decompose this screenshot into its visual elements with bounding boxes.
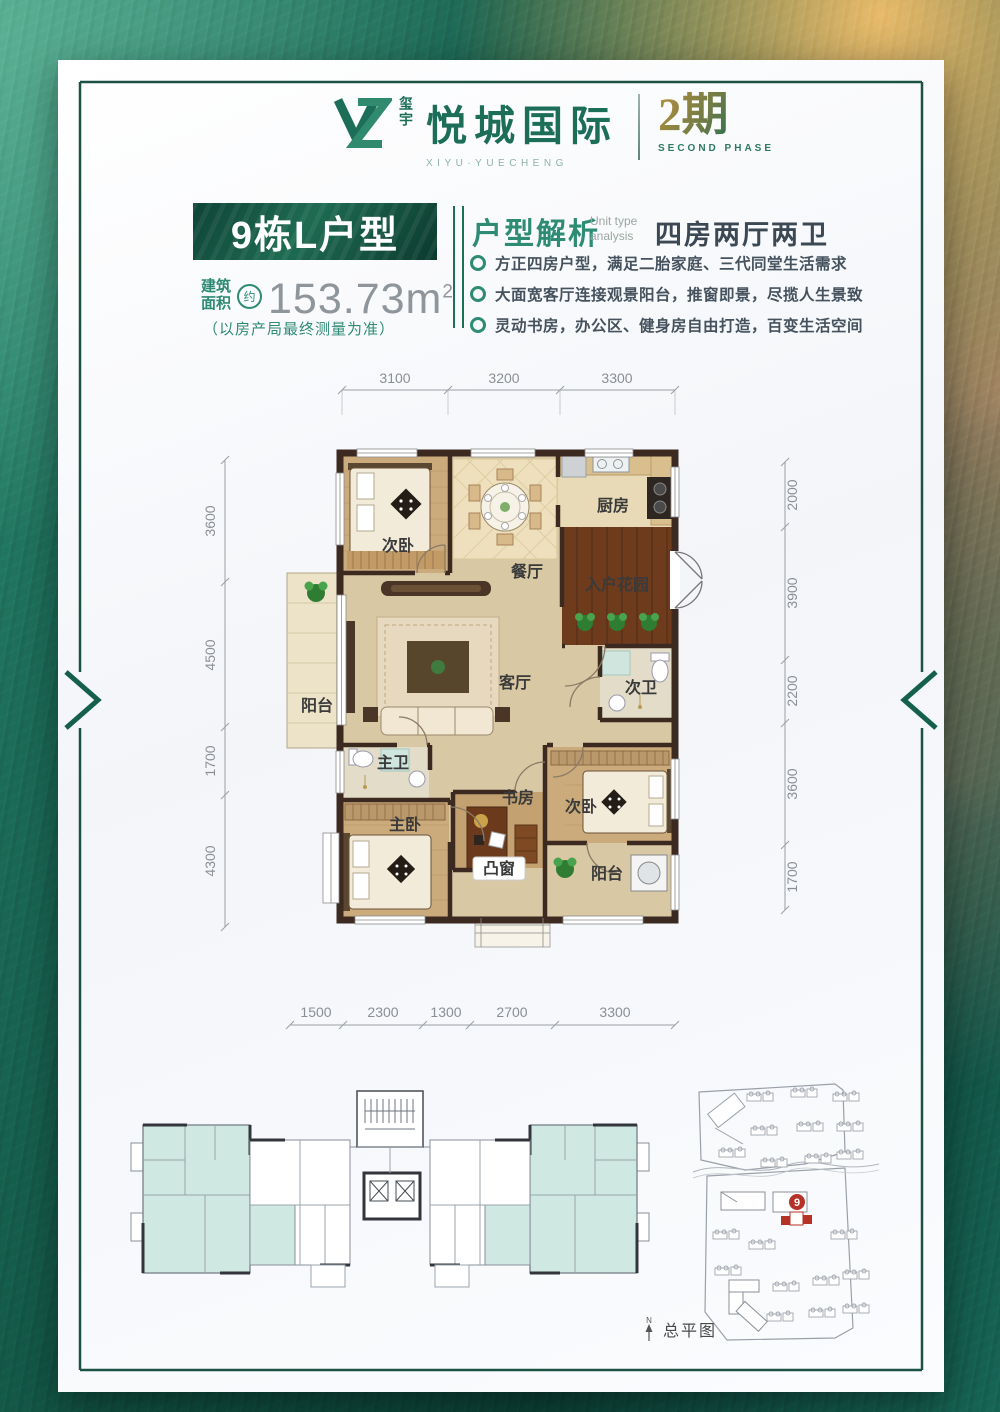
room-label-bedroom2-top: 次卧 <box>382 536 414 555</box>
room-label-balcony-bottom: 阳台 <box>591 864 623 883</box>
area-number: 153.73m <box>268 275 442 323</box>
room-label-kitchen: 厨房 <box>597 496 629 515</box>
phase-title: 2期 <box>658 92 774 139</box>
phase-subtitle: SECOND PHASE <box>658 143 774 154</box>
site-plan: 9 <box>685 1080 885 1350</box>
area-value: 153.73m2 <box>268 278 454 321</box>
dim-left-2: 4500 <box>202 639 218 670</box>
dim-left-1: 3600 <box>202 505 218 536</box>
dim-top-2: 3200 <box>488 370 519 386</box>
unit-title-block: 9栋L户型 <box>193 203 437 260</box>
dim-bottom-2: 2300 <box>367 1004 398 1020</box>
north-label: N <box>646 1316 652 1325</box>
bullet-text: 灵动书房，办公区、健身房自由打造，百变生活空间 <box>495 314 863 336</box>
analysis-subtitle-line2: analysis <box>590 229 637 244</box>
bullet-text: 大面宽客厅连接观景阳台，推窗即景，尽揽人生景致 <box>495 283 863 305</box>
north-arrow-icon: N <box>642 1315 656 1343</box>
brand-vertical-text: 玺宇 <box>396 96 416 128</box>
chevron-left-icon <box>904 672 936 728</box>
dim-bottom-5: 3300 <box>599 1004 630 1020</box>
area-prefix-line1: 建筑 <box>201 278 231 295</box>
unit-title: 9栋L户型 <box>231 204 399 259</box>
building-9-badge: 9 <box>794 1197 800 1209</box>
feature-bullet: 灵动书房，办公区、健身房自由打造，百变生活空间 <box>470 314 863 336</box>
logo-divider <box>638 94 640 160</box>
dim-top-3: 3300 <box>601 370 632 386</box>
dim-right-4: 3600 <box>784 768 800 799</box>
room-label-study: 书房 <box>502 788 534 807</box>
bullet-ring-icon <box>470 286 486 302</box>
dim-right-1: 2000 <box>784 479 800 510</box>
area-prefix: 建筑 面积 <box>201 278 231 313</box>
brand-name: 悦城国际 <box>426 92 618 152</box>
brand-mark-icon <box>330 92 392 160</box>
dim-bottom-1: 1500 <box>300 1004 331 1020</box>
analysis-subtitle-en: Unit type analysis <box>590 214 637 244</box>
siteplan-label: 总平图 <box>663 1317 717 1341</box>
dim-bottom-3: 1300 <box>430 1004 461 1020</box>
dim-right-2: 3900 <box>784 577 800 608</box>
room-label-master-bath: 主卫 <box>377 753 409 772</box>
room-label-entry-garden: 入户花园 <box>585 575 649 594</box>
feature-bullet: 方正四房户型，满足二胎家庭、三代同堂生活需求 <box>470 252 847 274</box>
dim-right-5: 1700 <box>784 861 800 892</box>
dim-left-4: 4300 <box>202 845 218 876</box>
bullet-text: 方正四房户型，满足二胎家庭、三代同堂生活需求 <box>495 252 847 274</box>
area-prefix-line2: 面积 <box>201 295 231 312</box>
stair-core <box>357 1091 423 1219</box>
brand-text-block: 悦城国际 XIYU·YUECHENG <box>426 92 618 169</box>
room-label-bedroom2-bottom: 次卧 <box>565 797 597 816</box>
dim-left-3: 1700 <box>202 745 218 776</box>
building-floorplate-diagram <box>125 1085 655 1300</box>
site-buildings <box>708 1087 869 1331</box>
room-label-balcony-left: 阳台 <box>301 696 333 715</box>
bullet-ring-icon <box>470 317 486 333</box>
area-row: 建筑 面积 约 153.73m2 <box>201 278 454 321</box>
chevron-right-icon <box>66 672 98 728</box>
dim-top-1: 3100 <box>379 370 410 386</box>
dim-right-3: 2200 <box>784 675 800 706</box>
room-label-dining: 餐厅 <box>510 562 543 581</box>
room-label-master-bedroom: 主卧 <box>389 815 421 834</box>
section-divider <box>453 206 464 328</box>
floor-plan: 次卧 餐厅 厨房 入户花园 客厅 次卫 阳台 主卫 主卧 书房 次卧 凸窗 阳台… <box>185 355 825 1065</box>
garden-plants <box>575 613 659 631</box>
analysis-title: 户型解析 <box>472 209 600 253</box>
layout-summary: 四房两厅两卫 <box>655 213 829 252</box>
brand-logo: 玺宇 悦城国际 XIYU·YUECHENG 2期 SECOND PHASE <box>330 92 774 169</box>
bullet-ring-icon <box>470 255 486 271</box>
brand-subtitle: XIYU·YUECHENG <box>426 158 618 169</box>
analysis-subtitle-line1: Unit type <box>590 214 637 229</box>
siteplan-caption: N 总平图 <box>642 1315 717 1343</box>
room-label-bay-window: 凸窗 <box>483 859 515 878</box>
dim-bottom-4: 2700 <box>496 1004 527 1020</box>
feature-bullet: 大面宽客厅连接观景阳台，推窗即景，尽揽人生景致 <box>470 283 863 305</box>
phase-block: 2期 SECOND PHASE <box>658 92 774 154</box>
room-label-bath2: 次卫 <box>625 678 657 697</box>
room-label-living: 客厅 <box>499 673 531 692</box>
area-note: （以房产局最终测量为准） <box>203 318 395 339</box>
area-approx-badge: 约 <box>237 284 262 309</box>
